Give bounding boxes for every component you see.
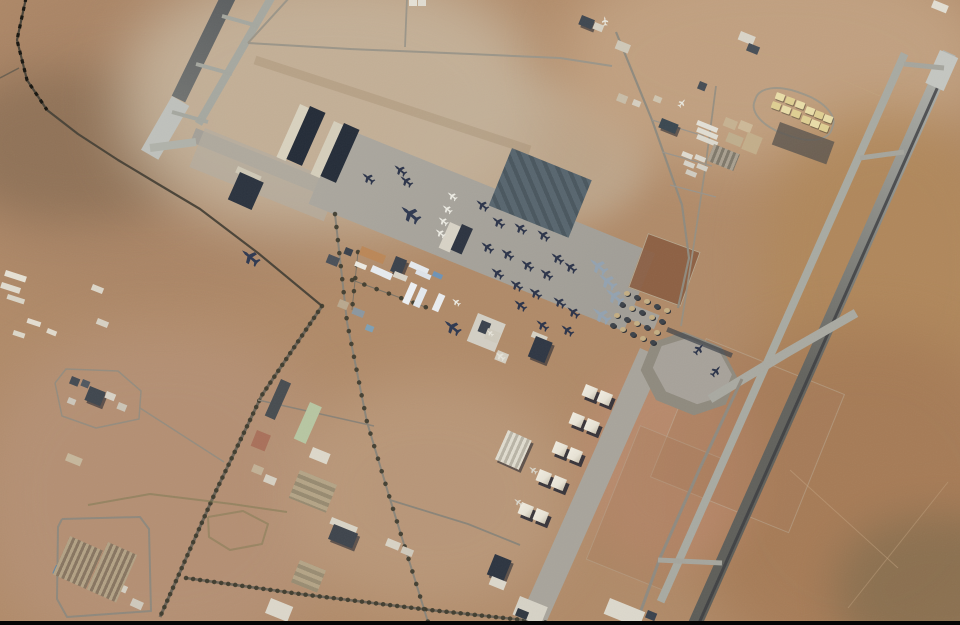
image-grain-overlay [0, 0, 960, 625]
bottom-black-bar [0, 621, 960, 625]
satellite-photo-airbase [0, 0, 960, 625]
